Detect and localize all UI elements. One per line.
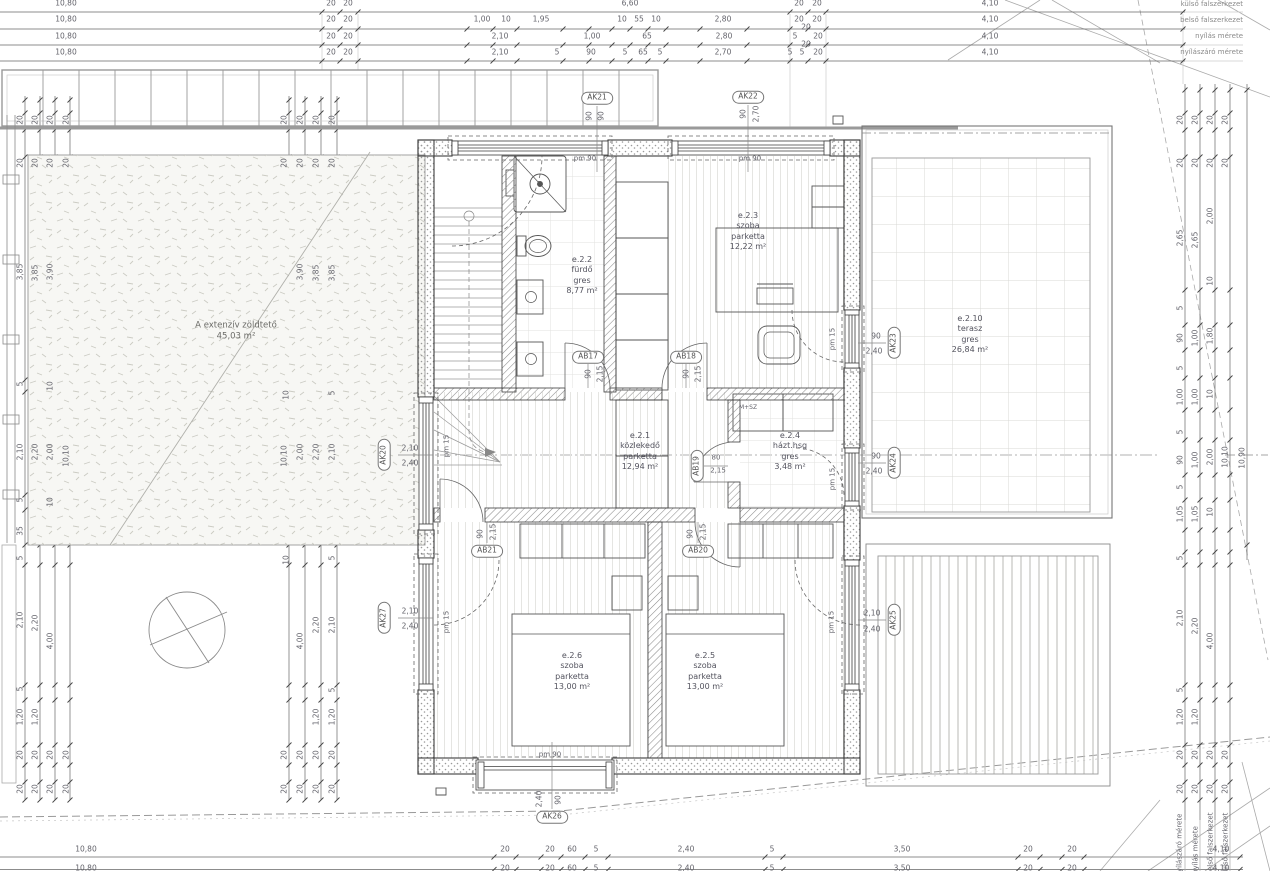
dim-label: 20 [1221, 784, 1229, 794]
dim-label: 20 [16, 784, 24, 794]
dim-label: 2,10 [492, 48, 509, 56]
dim-label: 10,80 [55, 15, 76, 23]
legend-row: nyílászáró mérete [1180, 48, 1243, 56]
dim-label: 5 [555, 48, 560, 56]
room-finish: parketta [730, 232, 766, 242]
room-name: szoba [730, 222, 766, 232]
dim-label: 5 [16, 687, 24, 692]
dim-label: 20 [280, 115, 288, 125]
dim-label: 2,40 [402, 622, 419, 630]
annotation-layer: külső falszerkezet belső falszerkezet ny… [0, 0, 1270, 871]
dim-label: 20 [343, 32, 353, 40]
dim-label: pm 90 [539, 752, 561, 759]
dim-label: 1,00 [1176, 389, 1184, 406]
dim-label: 4,00 [1206, 633, 1214, 650]
dim-label: 20 [500, 845, 510, 853]
dim-label: 5 [328, 556, 336, 561]
dim-label: 2,10 [1176, 610, 1184, 627]
dim-label: 20 [1221, 158, 1229, 168]
room-id: e.2.1 [620, 431, 660, 441]
dim-label: 5 [1176, 366, 1184, 371]
dim-label: 90 [476, 529, 484, 539]
room-area: 13,00 m² [687, 682, 723, 692]
opening-bubble-ak26: AK26 [536, 811, 568, 824]
dim-label: 2,10 [16, 444, 24, 461]
room-name: terasz [952, 325, 988, 335]
dim-label: 20 [328, 115, 336, 125]
green-roof-area: 45,03 m² [195, 332, 277, 343]
dim-label: 1,20 [16, 709, 24, 726]
dim-label: nyílás mérete [1193, 826, 1200, 871]
dim-label: 2,40 [864, 625, 881, 633]
dim-label: 2,10 [864, 609, 881, 617]
floor-plan-canvas: külső falszerkezet belső falszerkezet ny… [0, 0, 1270, 871]
dim-label: 20 [31, 750, 39, 760]
dim-label: 20 [62, 750, 70, 760]
dim-label: 10,90 [1238, 447, 1246, 468]
dim-label: 35 [16, 526, 24, 536]
dim-label: 20 [326, 0, 336, 7]
dim-label: 10 [1206, 276, 1214, 286]
legend-row: nyílás mérete [1195, 32, 1243, 40]
opening-bubble-ak21: AK21 [581, 92, 613, 105]
dim-label: 5 [770, 864, 775, 871]
room-finish: parketta [620, 452, 660, 462]
dim-label: 20 [1176, 115, 1184, 125]
dim-label: 20 [1206, 784, 1214, 794]
room-label-e-2-6: e.2.6szobaparketta13,00 m² [554, 651, 590, 693]
green-roof-name: A extenzív zöldtető [195, 321, 277, 332]
dim-label: 10 [1206, 389, 1214, 399]
opening-bubble-ak23: AK23 [888, 327, 901, 359]
dim-label: 65 [642, 32, 652, 40]
dim-label: 10,10 [280, 445, 288, 466]
dim-label: pm 90 [574, 156, 596, 163]
dim-label: 2,10 [402, 607, 419, 615]
dim-label: 5 [1176, 485, 1184, 490]
dim-label: pm 15 [830, 468, 837, 490]
dim-label: 20 [46, 158, 54, 168]
dim-label: 20 [16, 158, 24, 168]
dim-label: 90 [1176, 333, 1184, 343]
room-name: szoba [554, 662, 590, 672]
dim-label: 2,20 [312, 617, 320, 634]
dim-label: 5 [658, 48, 663, 56]
dim-label: 20 [326, 48, 336, 56]
dim-label: 5 [1176, 556, 1184, 561]
dim-label: 10 [46, 497, 54, 507]
dim-label: 3,85 [16, 264, 24, 281]
dim-label: nyílászáró mérete [1177, 814, 1184, 871]
dim-label: 20 [280, 158, 288, 168]
dim-label: 20 [46, 115, 54, 125]
dim-label: 3,85 [328, 265, 336, 282]
dim-label: 4,10 [982, 0, 999, 7]
room-name: fürdő [566, 266, 597, 276]
dim-label: 1,00 [1191, 330, 1199, 347]
dim-label: 20 [296, 750, 304, 760]
dim-label: 20 [62, 784, 70, 794]
dim-label: 5 [16, 498, 24, 503]
dim-label: 5 [16, 556, 24, 561]
room-id: e.2.3 [730, 211, 766, 221]
dim-label: 20 [545, 845, 555, 853]
dim-label: 10,80 [75, 845, 96, 853]
dim-label: 10 [1206, 507, 1214, 517]
dim-label: 20 [296, 115, 304, 125]
dim-label: 20 [326, 15, 336, 23]
dim-label: 90 [1176, 455, 1184, 465]
dim-label: 4,10 [982, 48, 999, 56]
dim-label: 10 [617, 15, 627, 23]
dim-label: 2,15 [699, 524, 707, 541]
dim-label: 1,00 [1191, 452, 1199, 469]
dim-label: 3,90 [296, 264, 304, 281]
room-label-e-2-1: e.2.1közlekedőparketta12,94 m² [620, 431, 660, 473]
dim-label: 10,10 [1221, 446, 1229, 467]
room-finish: parketta [687, 672, 723, 682]
room-area: 3,48 m² [773, 462, 807, 472]
dim-label: 2,20 [31, 615, 39, 632]
dim-label: 20 [1206, 750, 1214, 760]
dim-label: 2,10 [402, 444, 419, 452]
dim-label: pm 15 [444, 435, 451, 457]
room-id: e.2.4 [773, 431, 807, 441]
legend-row: külső falszerkezet [1181, 0, 1243, 8]
room-label-e-2-10: e.2.10teraszgres26,84 m² [952, 314, 988, 356]
opening-bubble-ak24: AK24 [888, 447, 901, 479]
dim-label: 10 [46, 381, 54, 391]
dim-label: 2,40 [402, 459, 419, 467]
dim-label: 20 [46, 750, 54, 760]
dim-label: 20 [1221, 750, 1229, 760]
dim-label: 4,00 [46, 633, 54, 650]
dim-label: 20 [296, 784, 304, 794]
dim-label: 2,65 [1191, 232, 1199, 249]
dim-label: 20 [328, 750, 336, 760]
dim-label: 20 [812, 0, 822, 7]
dim-label: 20 [31, 784, 39, 794]
dim-label: 10,80 [55, 32, 76, 40]
dim-label: 20 [1191, 784, 1199, 794]
opening-bubble-ab20: AB20 [682, 545, 714, 558]
dim-label: 20 [62, 158, 70, 168]
dim-label: 1,20 [1191, 709, 1199, 726]
dim-label: 20 [1221, 115, 1229, 125]
green-roof-label: A extenzív zöldtető 45,03 m² [195, 321, 277, 344]
dim-label: 20 [1023, 864, 1033, 871]
dim-label: 90 [686, 529, 694, 539]
dim-label: 5 [16, 382, 24, 387]
dim-label: 20 [343, 15, 353, 23]
dim-label: 1,00 [474, 15, 491, 23]
dim-label: 1,00 [584, 32, 601, 40]
dim-label: 90 [597, 111, 605, 121]
opening-bubble-ab21: AB21 [471, 545, 503, 558]
dim-label: 20 [312, 750, 320, 760]
opening-bubble-ak27: AK27 [378, 602, 391, 634]
dim-label: 4,00 [296, 633, 304, 650]
dim-label: 20 [1176, 750, 1184, 760]
dim-label: 20 [1191, 158, 1199, 168]
dim-label: 1,20 [328, 709, 336, 726]
dim-label: 5 [788, 48, 793, 56]
opening-bubble-ak20: AK20 [378, 439, 391, 471]
dim-label: 2,20 [31, 444, 39, 461]
dim-label: 20 [1176, 158, 1184, 168]
dim-label: 3,90 [46, 264, 54, 281]
dim-label: 20 [1206, 115, 1214, 125]
dim-label: 5 [1176, 430, 1184, 435]
dim-label: 2,10 [328, 617, 336, 634]
dim-label: 2,70 [752, 106, 760, 123]
dim-label: 2,40 [866, 347, 883, 355]
dim-label: 20 [312, 158, 320, 168]
dim-label: 20 [545, 864, 555, 871]
dim-label: 20 [813, 32, 823, 40]
dim-label: 90 [584, 369, 592, 379]
opening-bubble-ak22: AK22 [732, 91, 764, 104]
dim-label: 20 [46, 784, 54, 794]
dim-label: 90 [871, 452, 881, 460]
dim-label: 5 [328, 688, 336, 693]
dim-label: pm 90 [739, 156, 761, 163]
dim-label: 3,50 [894, 864, 911, 871]
dim-label: 2,00 [296, 444, 304, 461]
dim-label: 2,65 [1176, 230, 1184, 247]
dim-label: 20 [1067, 845, 1077, 853]
room-id: e.2.6 [554, 651, 590, 661]
dim-label: 5 [1176, 306, 1184, 311]
dim-label: 10 [501, 15, 511, 23]
dim-label: 80 [712, 455, 721, 462]
dim-label: 3,85 [31, 265, 39, 282]
room-finish: gres [952, 335, 988, 345]
dim-label: 20 [280, 784, 288, 794]
dim-label: 2,15 [489, 524, 497, 541]
dim-label: 5 [623, 48, 628, 56]
dim-label: 10 [282, 390, 290, 400]
dim-label: 20 [31, 115, 39, 125]
dim-label: 4,10 [982, 32, 999, 40]
dim-label: 55 [634, 15, 644, 23]
room-id: e.2.10 [952, 314, 988, 324]
dim-label: 20 [312, 784, 320, 794]
dim-label: 20 [296, 158, 304, 168]
dim-label: 5 [594, 864, 599, 871]
dim-label: 20 [280, 750, 288, 760]
room-finish: parketta [554, 672, 590, 682]
dim-label: 20 [500, 864, 510, 871]
dim-label: 5 [793, 32, 798, 40]
dim-label: 1,20 [31, 709, 39, 726]
dim-label: 20 [812, 15, 822, 23]
dim-label: 5 [800, 48, 805, 56]
dim-label: 2,15 [694, 366, 702, 383]
dim-label: 20 [1191, 750, 1199, 760]
dim-label: 3,85 [312, 265, 320, 282]
room-label-e-2-2: e.2.2fürdőgres8,77 m² [566, 255, 597, 297]
dim-label: 10,10 [62, 445, 70, 466]
room-area: 13,00 m² [554, 682, 590, 692]
dim-label: 2,40 [866, 467, 883, 475]
dim-label: 20 [328, 158, 336, 168]
dim-label: 2,15 [710, 468, 726, 475]
dim-label: 2,20 [1191, 618, 1199, 635]
room-name: közlekedő [620, 442, 660, 452]
room-label-e-2-3: e.2.3szobaparketta12,22 m² [730, 211, 766, 253]
dim-label: 90 [585, 111, 593, 121]
dim-label: 20 [1206, 158, 1214, 168]
room-area: 8,77 m² [566, 286, 597, 296]
room-area: 26,84 m² [952, 345, 988, 355]
dim-label: 20 [1176, 784, 1184, 794]
dim-label: 20 [1067, 864, 1077, 871]
dim-label: 5 [594, 845, 599, 853]
room-name: házt.hsg [773, 442, 807, 452]
dim-label: külső falszerkezet [1223, 813, 1230, 871]
dim-label: 90 [682, 369, 690, 379]
room-area: 12,22 m² [730, 242, 766, 252]
dim-label: belső falszerkezet [1208, 813, 1215, 871]
dim-label: 1,05 [1191, 506, 1199, 523]
dim-label: 20 [16, 115, 24, 125]
dim-label: 2,40 [678, 845, 695, 853]
dim-label: 5 [770, 845, 775, 853]
dim-label: 5 [328, 391, 336, 396]
dim-label: 65 [638, 48, 648, 56]
dim-label: 60 [567, 864, 577, 871]
dim-label: pm 15 [830, 328, 837, 350]
dim-label: 20 [1023, 845, 1033, 853]
room-name: szoba [687, 662, 723, 672]
dim-label: 20 [16, 750, 24, 760]
dim-label: 90 [871, 332, 881, 340]
dim-label: 2,20 [312, 444, 320, 461]
dim-label: 20 [326, 32, 336, 40]
dim-label: 6,60 [622, 0, 639, 7]
dim-label: 10,80 [75, 864, 96, 871]
dim-label: 2,00 [46, 444, 54, 461]
room-area: 12,94 m² [620, 462, 660, 472]
dim-label: 10,80 [55, 0, 76, 7]
room-finish: gres [773, 452, 807, 462]
dim-label: 3,50 [894, 845, 911, 853]
dim-label: 2,40 [535, 791, 543, 808]
opening-bubble-ab18: AB18 [670, 351, 702, 364]
dim-label: 2,40 [678, 864, 695, 871]
dim-label: M+SZ [739, 405, 757, 411]
dim-label: 90 [739, 109, 747, 119]
dim-label: 10 [651, 15, 661, 23]
room-label-e-2-4: e.2.4házt.hsggres3,48 m² [773, 431, 807, 473]
dim-label: 2,15 [596, 366, 604, 383]
dim-label: 1,00 [1191, 389, 1199, 406]
dim-label: 20 [343, 48, 353, 56]
opening-bubble-ab19: AB19 [691, 450, 704, 482]
dim-label: 10 [282, 555, 290, 565]
dim-label: 90 [586, 48, 596, 56]
legend-row: belső falszerkezet [1180, 16, 1243, 24]
dim-label: 1,05 [1176, 506, 1184, 523]
room-id: e.2.5 [687, 651, 723, 661]
dim-label: 20 [801, 23, 811, 31]
dim-label: 1,95 [533, 15, 550, 23]
dim-label: 20 [31, 158, 39, 168]
dim-label: 20 [343, 0, 353, 7]
dim-label: 1,80 [1206, 328, 1214, 345]
dim-label: 2,10 [16, 612, 24, 629]
dim-label: 4,10 [982, 15, 999, 23]
dim-label: 2,70 [715, 48, 732, 56]
dim-label: 90 [554, 795, 562, 805]
room-id: e.2.2 [566, 255, 597, 265]
dim-label: 20 [328, 784, 336, 794]
dim-label: 10,80 [55, 48, 76, 56]
dim-label: pm 15 [829, 611, 836, 633]
dim-label: 60 [567, 845, 577, 853]
dim-label: 1,20 [1176, 709, 1184, 726]
dim-label: 2,10 [492, 32, 509, 40]
dim-label: 20 [62, 115, 70, 125]
dim-label: 5 [1176, 688, 1184, 693]
dim-label: 20 [312, 115, 320, 125]
dim-label: 2,00 [1206, 208, 1214, 225]
dim-label: pm 15 [444, 611, 451, 633]
room-finish: gres [566, 276, 597, 286]
dim-label: 2,80 [715, 15, 732, 23]
room-label-e-2-5: e.2.5szobaparketta13,00 m² [687, 651, 723, 693]
dim-label: 20 [813, 48, 823, 56]
dim-label: 1,20 [312, 709, 320, 726]
dim-label: 2,10 [328, 444, 336, 461]
dim-label: 20 [794, 0, 804, 7]
dim-label: 2,00 [1206, 449, 1214, 466]
dim-label: 20 [1191, 115, 1199, 125]
opening-bubble-ak25: AK25 [888, 604, 901, 636]
opening-bubble-ab17: AB17 [572, 351, 604, 364]
dim-label: 2,80 [716, 32, 733, 40]
